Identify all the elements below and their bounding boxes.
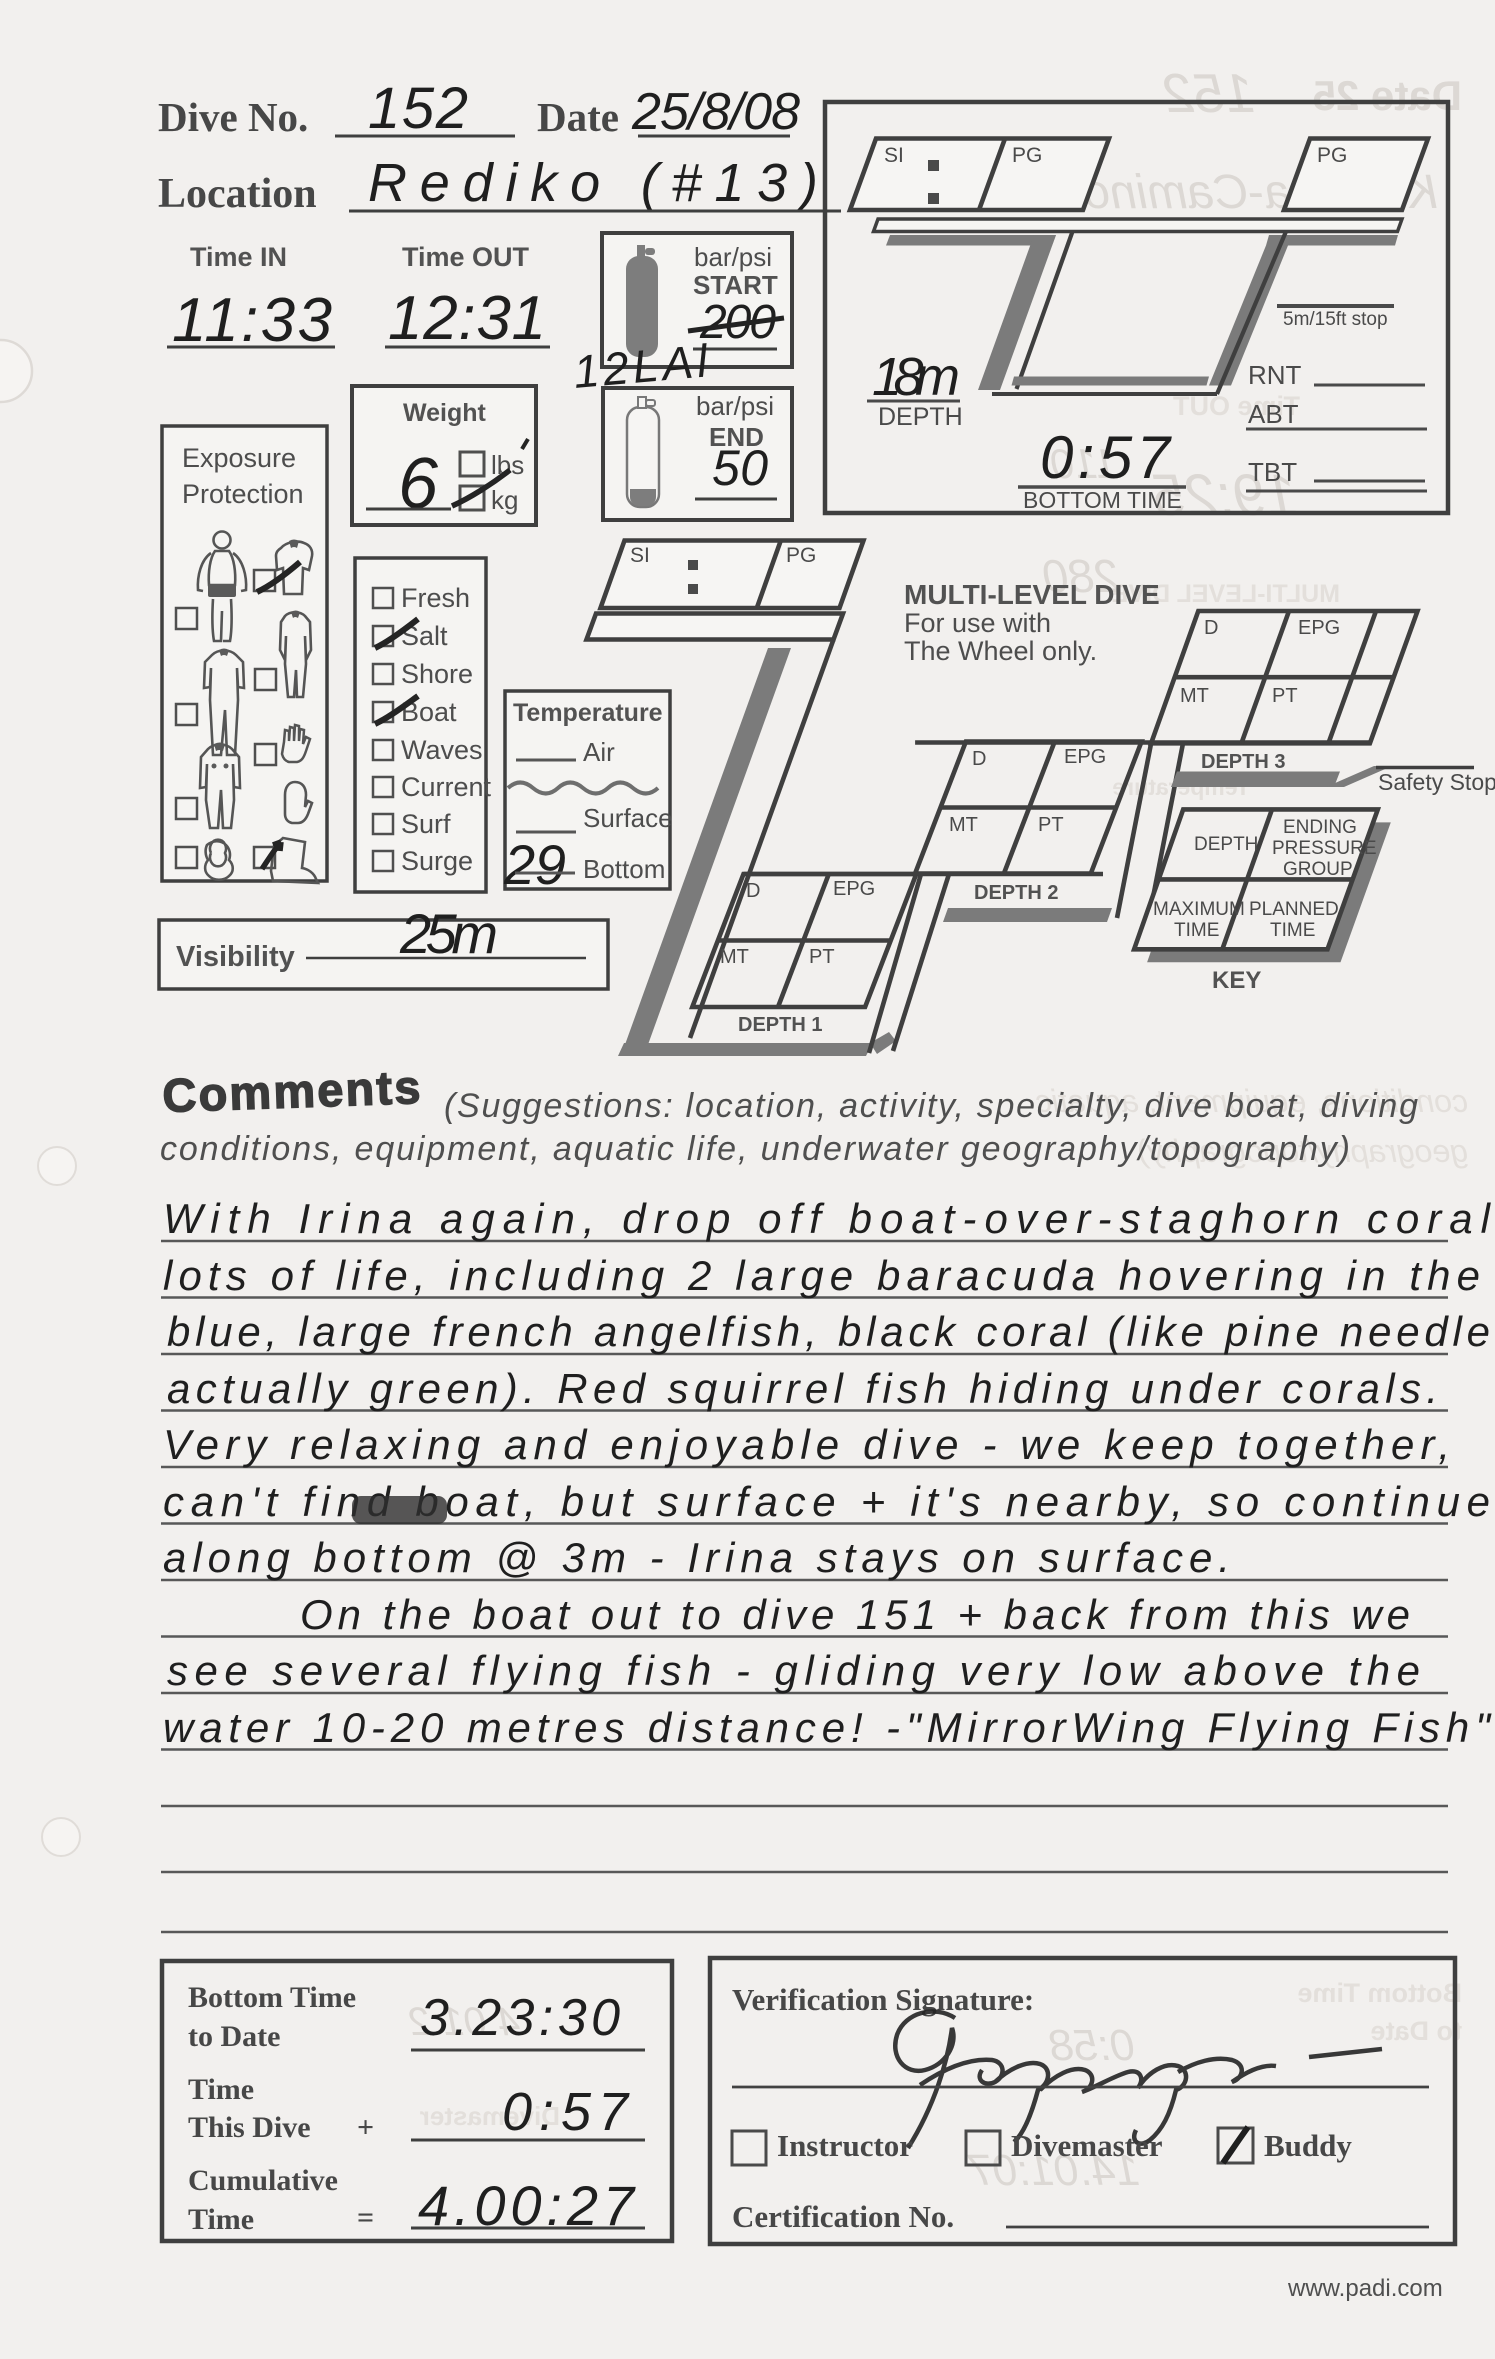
- svg-text:GROUP: GROUP: [1283, 859, 1353, 880]
- svg-text:lbs: lbs: [491, 450, 524, 480]
- svg-text:Visibility: Visibility: [176, 941, 295, 973]
- svg-text:TBT: TBT: [1248, 457, 1297, 487]
- svg-text:MT: MT: [949, 814, 978, 836]
- svg-text:Bottom Time: Bottom Time: [1297, 1978, 1462, 2008]
- svg-text:Very relaxing and enjoyable di: Very relaxing and enjoyable dive - we ke…: [163, 1421, 1450, 1468]
- svg-text:along bottom @ 3m - Irina stay: along bottom @ 3m - Irina stays on surfa…: [163, 1534, 1230, 1581]
- svg-text:Time: Time: [188, 2073, 254, 2106]
- svg-text:DEPTH 2: DEPTH 2: [974, 882, 1058, 904]
- svg-text:EPG: EPG: [833, 878, 875, 900]
- svg-text:50: 50: [712, 440, 768, 496]
- svg-text:This Dive: This Dive: [188, 2111, 311, 2144]
- svg-text:Temperature: Temperature: [513, 699, 663, 727]
- svg-text:conditions, equipment, aquatic: conditions, equipment, aquatic life, und…: [160, 1130, 1350, 1168]
- svg-text:MT: MT: [720, 946, 749, 968]
- svg-text:152: 152: [1163, 62, 1255, 124]
- svg-text:PG: PG: [1012, 144, 1042, 167]
- svg-text:Time OUT: Time OUT: [402, 242, 530, 272]
- svg-text:Surge: Surge: [401, 846, 473, 876]
- svg-text:Surf: Surf: [401, 809, 451, 839]
- svg-text:Cumulative: Cumulative: [188, 2164, 338, 2197]
- svg-text:PT: PT: [809, 946, 835, 968]
- svg-text:KEY: KEY: [1212, 967, 1261, 994]
- svg-text:11:33: 11:33: [172, 286, 332, 355]
- svg-text:PRESSURE: PRESSURE: [1272, 838, 1377, 859]
- svg-text:PT: PT: [1272, 685, 1298, 707]
- svg-text:Dive No.: Dive No.: [158, 94, 308, 140]
- svg-text:Comments: Comments: [161, 1060, 421, 1122]
- svg-text:Time IN: Time IN: [190, 242, 287, 272]
- svg-text:Location: Location: [158, 171, 317, 217]
- svg-text:+: +: [357, 2111, 374, 2144]
- svg-text:25/8/08: 25/8/08: [631, 83, 800, 141]
- svg-text:bar/psi: bar/psi: [694, 242, 772, 272]
- svg-text:EPG: EPG: [1064, 746, 1106, 768]
- svg-text:Air: Air: [583, 737, 615, 767]
- svg-text:29: 29: [503, 833, 566, 896]
- svg-text:Exposure: Exposure: [182, 443, 296, 473]
- svg-text:TIME: TIME: [1174, 920, 1219, 941]
- svg-text:Date 25: Date 25: [1313, 72, 1462, 119]
- svg-text:Buddy: Buddy: [1264, 2128, 1352, 2163]
- svg-text:Protection: Protection: [182, 479, 304, 509]
- svg-text:Certification No.: Certification No.: [732, 2199, 954, 2234]
- svg-text:ENDING: ENDING: [1283, 817, 1357, 838]
- svg-text:Bottom: Bottom: [583, 854, 665, 884]
- svg-text:BOTTOM TIME: BOTTOM TIME: [1023, 487, 1182, 513]
- svg-text:152: 152: [368, 76, 468, 141]
- svg-text:0:58: 0:58: [1049, 2021, 1135, 2070]
- svg-text:DEPTH: DEPTH: [1194, 834, 1258, 855]
- svg-text:PLANNED: PLANNED: [1249, 899, 1339, 920]
- svg-text:TIME: TIME: [1270, 920, 1315, 941]
- svg-text:DEPTH 3: DEPTH 3: [1201, 751, 1285, 773]
- svg-text:to Date: to Date: [188, 2020, 280, 2053]
- svg-text:5m/15ft stop: 5m/15ft stop: [1283, 309, 1388, 330]
- svg-text:Current: Current: [401, 772, 492, 802]
- svg-text:25m: 25m: [399, 902, 498, 965]
- svg-text:Fresh: Fresh: [401, 583, 470, 613]
- svg-text:Waves: Waves: [401, 735, 483, 765]
- svg-text:PG: PG: [1317, 144, 1347, 167]
- svg-text:18m: 18m: [872, 347, 960, 407]
- svg-text:MAXIMUM: MAXIMUM: [1153, 899, 1245, 920]
- svg-text:SI: SI: [630, 544, 650, 567]
- svg-text:Weight: Weight: [403, 399, 487, 427]
- svg-text:12:31: 12:31: [388, 284, 546, 353]
- svg-text:Bottom Time: Bottom Time: [188, 1981, 356, 2014]
- svg-text:Instructor: Instructor: [777, 2128, 913, 2163]
- svg-text:(Suggestions: location, activi: (Suggestions: location, activity, specia…: [444, 1087, 1418, 1125]
- svg-text:Divemaster: Divemaster: [1011, 2128, 1163, 2163]
- svg-text:Time: Time: [188, 2203, 254, 2236]
- svg-text:to Date: to Date: [1370, 2016, 1462, 2046]
- svg-text:PG: PG: [786, 544, 816, 567]
- svg-text:D: D: [746, 880, 760, 902]
- svg-text:DEPTH: DEPTH: [878, 403, 963, 431]
- svg-text:DEPTH 1: DEPTH 1: [738, 1014, 822, 1036]
- svg-text:0:57: 0:57: [502, 2082, 630, 2142]
- svg-text:Safety Stop: Safety Stop: [1378, 769, 1495, 795]
- svg-text:D: D: [1204, 617, 1218, 639]
- svg-text:kg: kg: [491, 485, 518, 515]
- svg-text:bar/psi: bar/psi: [696, 391, 774, 421]
- svg-text:Shore: Shore: [401, 659, 473, 689]
- svg-text:MULTI-LEVEL DIVE: MULTI-LEVEL DIVE: [904, 579, 1160, 610]
- svg-text:6: 6: [398, 444, 439, 524]
- svg-text:For use with: For use with: [904, 608, 1051, 638]
- svg-text:On the boat out to dive 151 +: On the boat out to dive 151 + back from …: [300, 1591, 1410, 1638]
- svg-text:D: D: [972, 748, 986, 770]
- svg-text:The Wheel only.: The Wheel only.: [904, 636, 1097, 666]
- svg-text:Verification Signature:: Verification Signature:: [732, 1982, 1034, 2017]
- svg-text:Date: Date: [537, 94, 619, 140]
- svg-text:=: =: [357, 2201, 374, 2234]
- svg-text:ABT: ABT: [1248, 399, 1299, 429]
- svg-text:PT: PT: [1038, 814, 1064, 836]
- svg-text:www.padi.com: www.padi.com: [1287, 2275, 1443, 2302]
- svg-text:RNT: RNT: [1248, 360, 1302, 390]
- svg-text:EPG: EPG: [1298, 617, 1340, 639]
- svg-text:MT: MT: [1180, 685, 1209, 707]
- svg-text:SI: SI: [884, 144, 904, 167]
- svg-text:0:57: 0:57: [1040, 424, 1173, 491]
- svg-text:Surface: Surface: [583, 803, 673, 833]
